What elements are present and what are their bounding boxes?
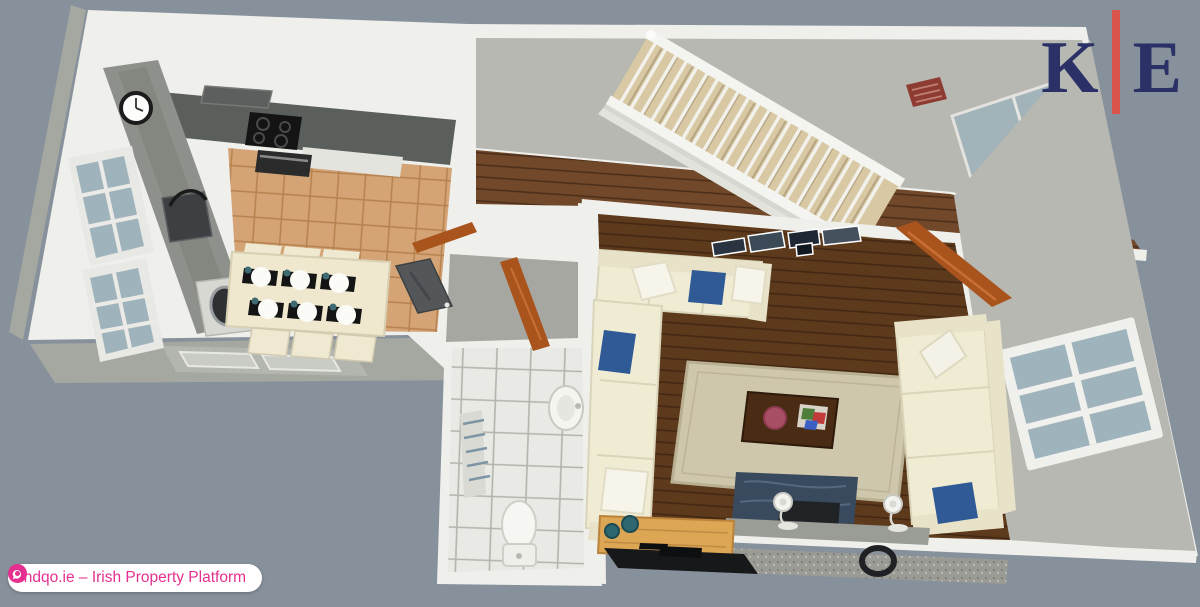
blue-cushion — [688, 270, 726, 305]
kitchen-sink — [162, 191, 212, 242]
magazines — [797, 404, 828, 430]
floor-plan-3d — [0, 0, 1200, 607]
teal-bowl — [605, 524, 619, 538]
three-seat-sofa — [894, 314, 1016, 536]
findqo-globe-icon — [8, 564, 27, 583]
white-cushion — [601, 468, 648, 514]
findqo-badge: findqo.ie – Irish Property Platform — [8, 564, 262, 592]
wall-clock — [121, 93, 151, 123]
toilet — [502, 501, 536, 566]
ke-logo: K E — [1041, 10, 1182, 114]
ke-logo-letter-k: K — [1041, 31, 1099, 105]
pedestal-sink — [549, 386, 583, 430]
blue-cushion — [932, 482, 978, 524]
decor-bowl — [764, 407, 786, 429]
blue-cushion — [598, 330, 636, 374]
coffee-table — [742, 392, 838, 448]
ke-logo-letter-e: E — [1133, 31, 1182, 105]
dining-table — [226, 243, 390, 362]
findqo-badge-text: findqo.ie – Irish Property Platform — [16, 569, 246, 587]
cooktop — [245, 112, 302, 150]
floor-plan-image: K E findqo.ie – Irish Property Platform — [0, 0, 1200, 607]
ke-logo-red-bar — [1112, 10, 1120, 114]
white-cushion — [732, 266, 766, 304]
teal-bowl — [622, 516, 638, 532]
